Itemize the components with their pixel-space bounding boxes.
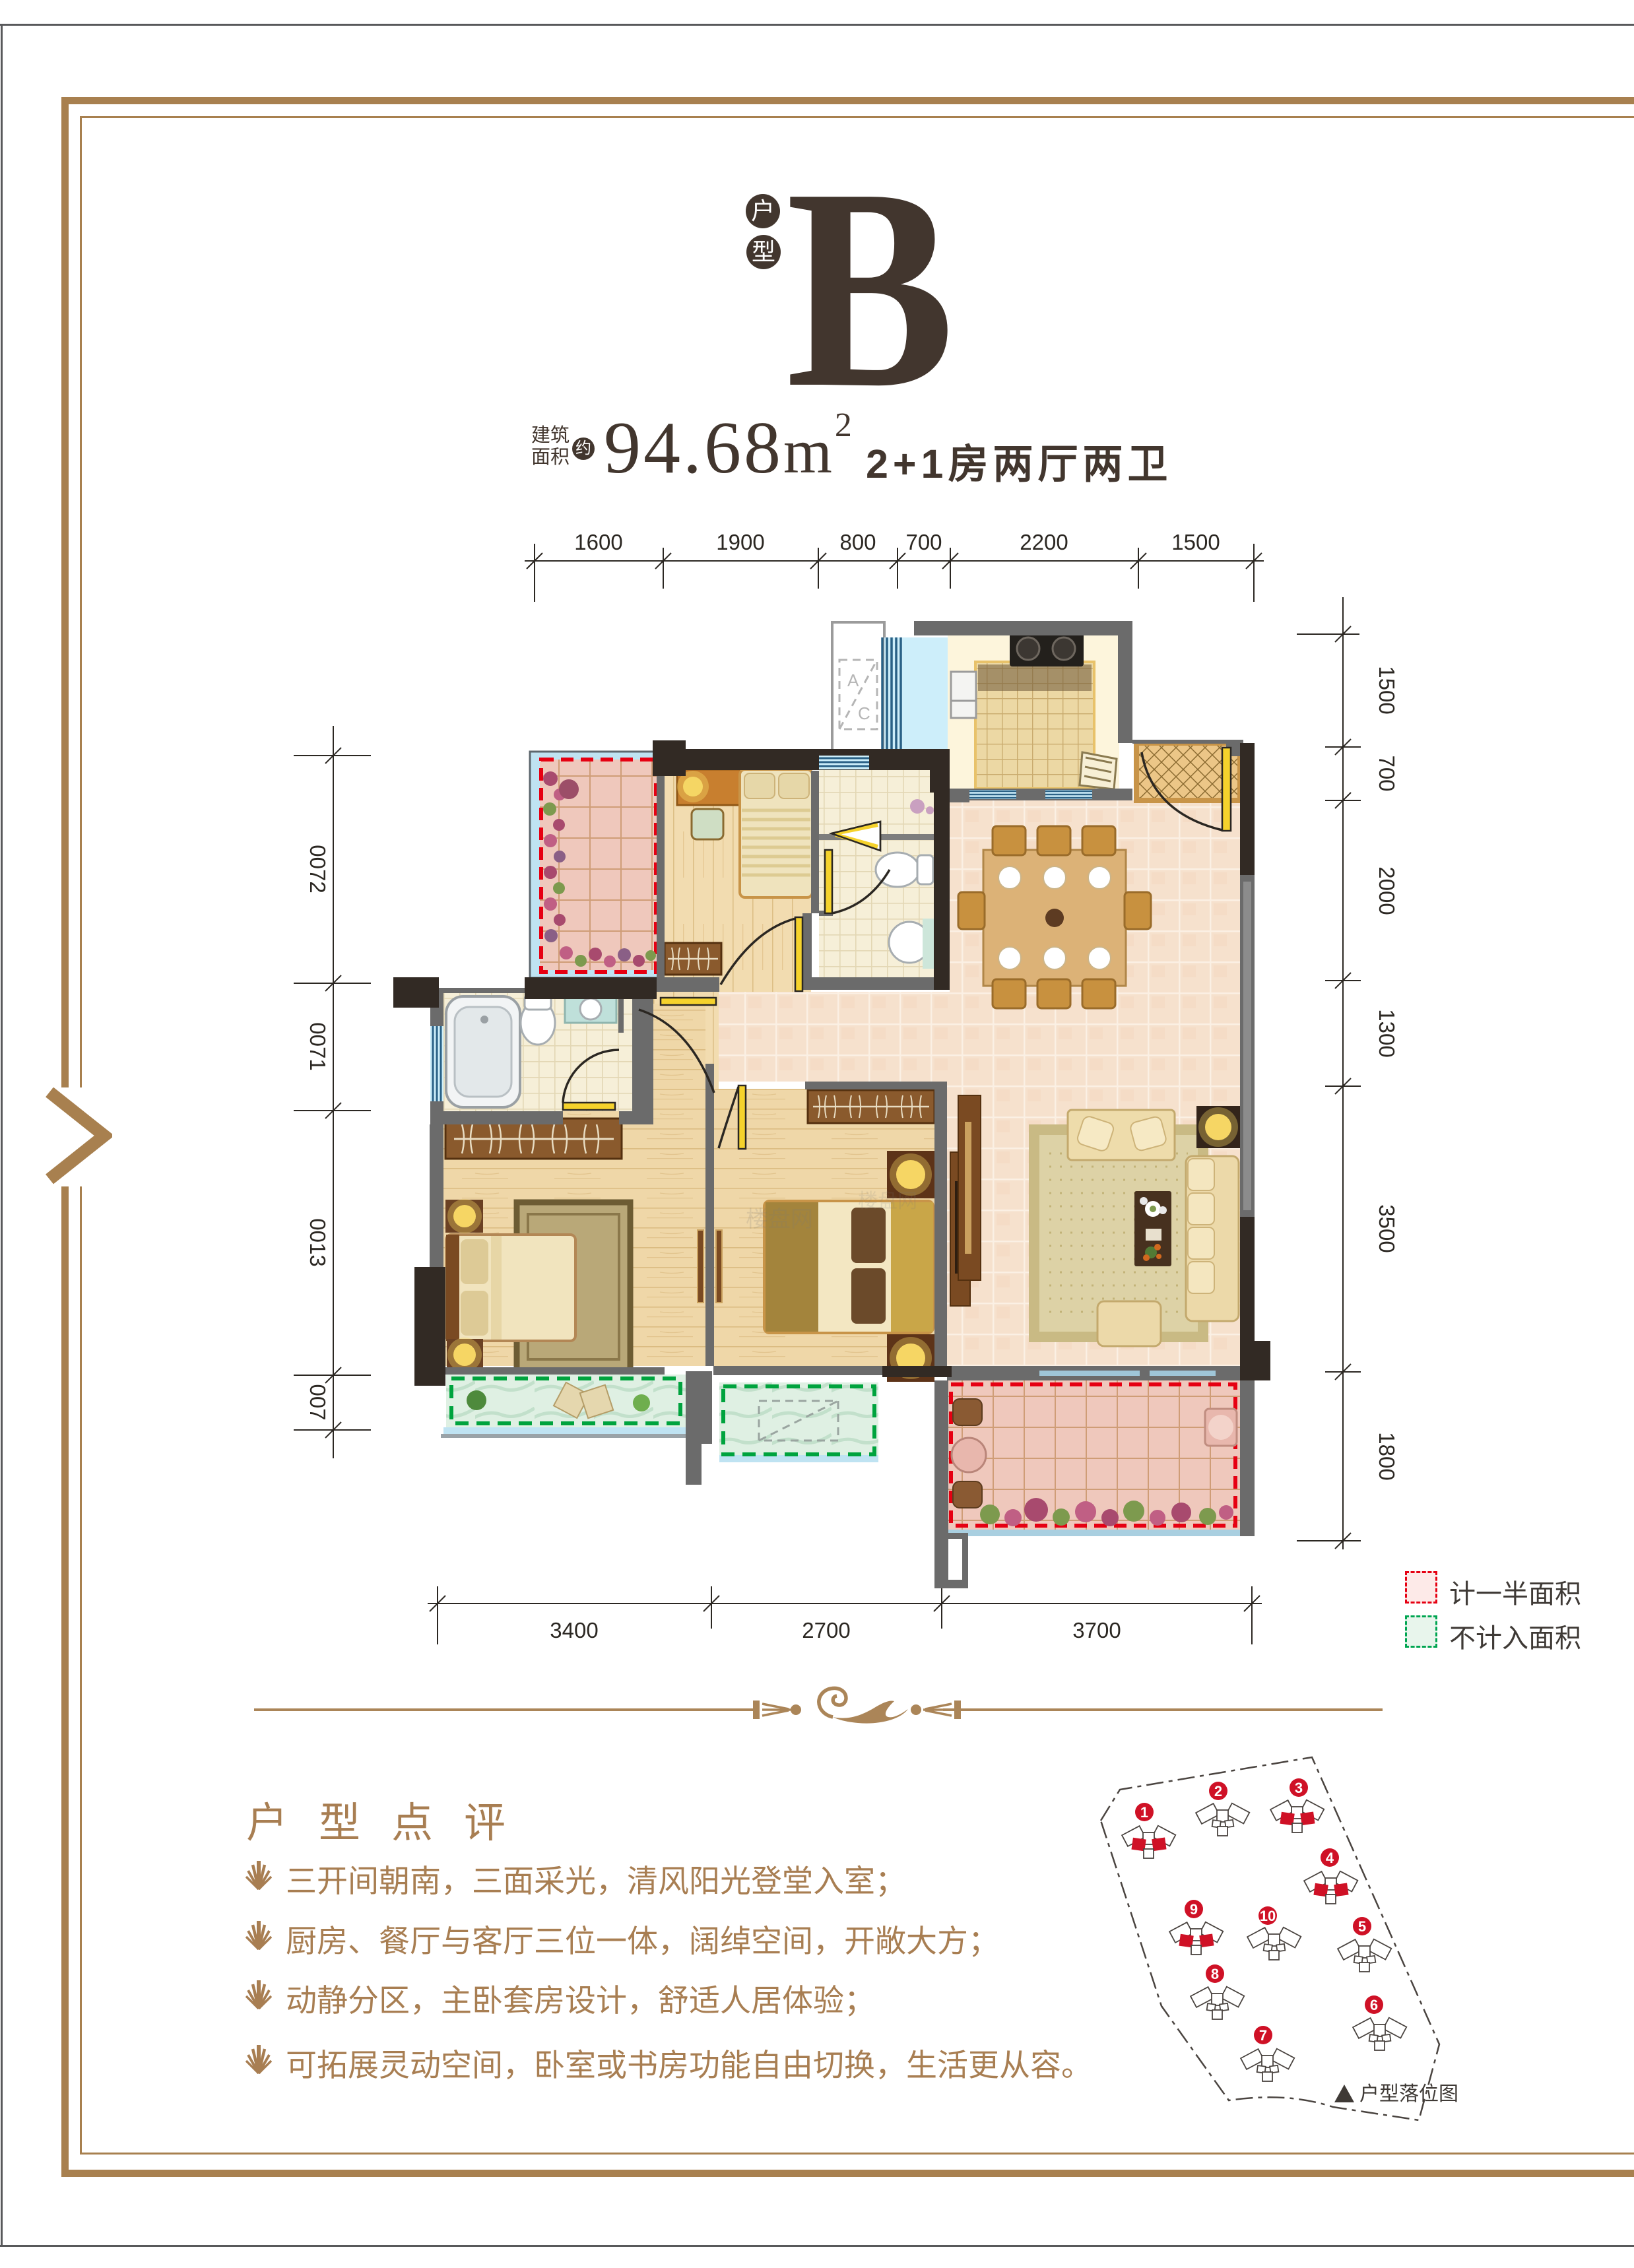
svg-text:8: 8	[1211, 1966, 1219, 1982]
svg-text:户型落位图: 户型落位图	[1359, 2083, 1458, 2105]
svg-text:1300: 1300	[1375, 1009, 1399, 1057]
svg-text:C: C	[858, 703, 870, 723]
svg-text:3: 3	[1295, 1780, 1303, 1796]
svg-text:3700: 3700	[1072, 1618, 1121, 1642]
svg-text:A: A	[847, 670, 859, 690]
svg-text:0013: 0013	[306, 1218, 330, 1266]
svg-text:1800: 1800	[1375, 1432, 1399, 1480]
svg-text:1: 1	[1140, 1804, 1148, 1821]
svg-text:800: 800	[839, 530, 876, 554]
svg-text:1500: 1500	[1375, 666, 1399, 714]
svg-text:700: 700	[1375, 755, 1399, 791]
svg-text:7: 7	[1259, 2027, 1267, 2044]
svg-text:700: 700	[905, 530, 942, 554]
svg-text:1600: 1600	[574, 530, 622, 554]
svg-text:2200: 2200	[1020, 530, 1068, 554]
svg-text:1900: 1900	[716, 530, 764, 554]
svg-text:9: 9	[1190, 1901, 1198, 1918]
svg-text:3400: 3400	[550, 1618, 598, 1642]
svg-text:6: 6	[1370, 1997, 1378, 2013]
svg-text:2: 2	[1214, 1783, 1222, 1799]
svg-text:0072: 0072	[306, 845, 330, 893]
svg-text:10: 10	[1260, 1908, 1276, 1924]
svg-text:2000: 2000	[1375, 866, 1399, 915]
svg-text:2700: 2700	[802, 1618, 850, 1642]
svg-text:1500: 1500	[1171, 530, 1220, 554]
svg-text:4: 4	[1326, 1850, 1334, 1866]
svg-text:5: 5	[1358, 1918, 1366, 1935]
svg-text:3500: 3500	[1375, 1204, 1399, 1252]
svg-text:007: 007	[306, 1384, 330, 1420]
svg-text:0071: 0071	[306, 1022, 330, 1070]
